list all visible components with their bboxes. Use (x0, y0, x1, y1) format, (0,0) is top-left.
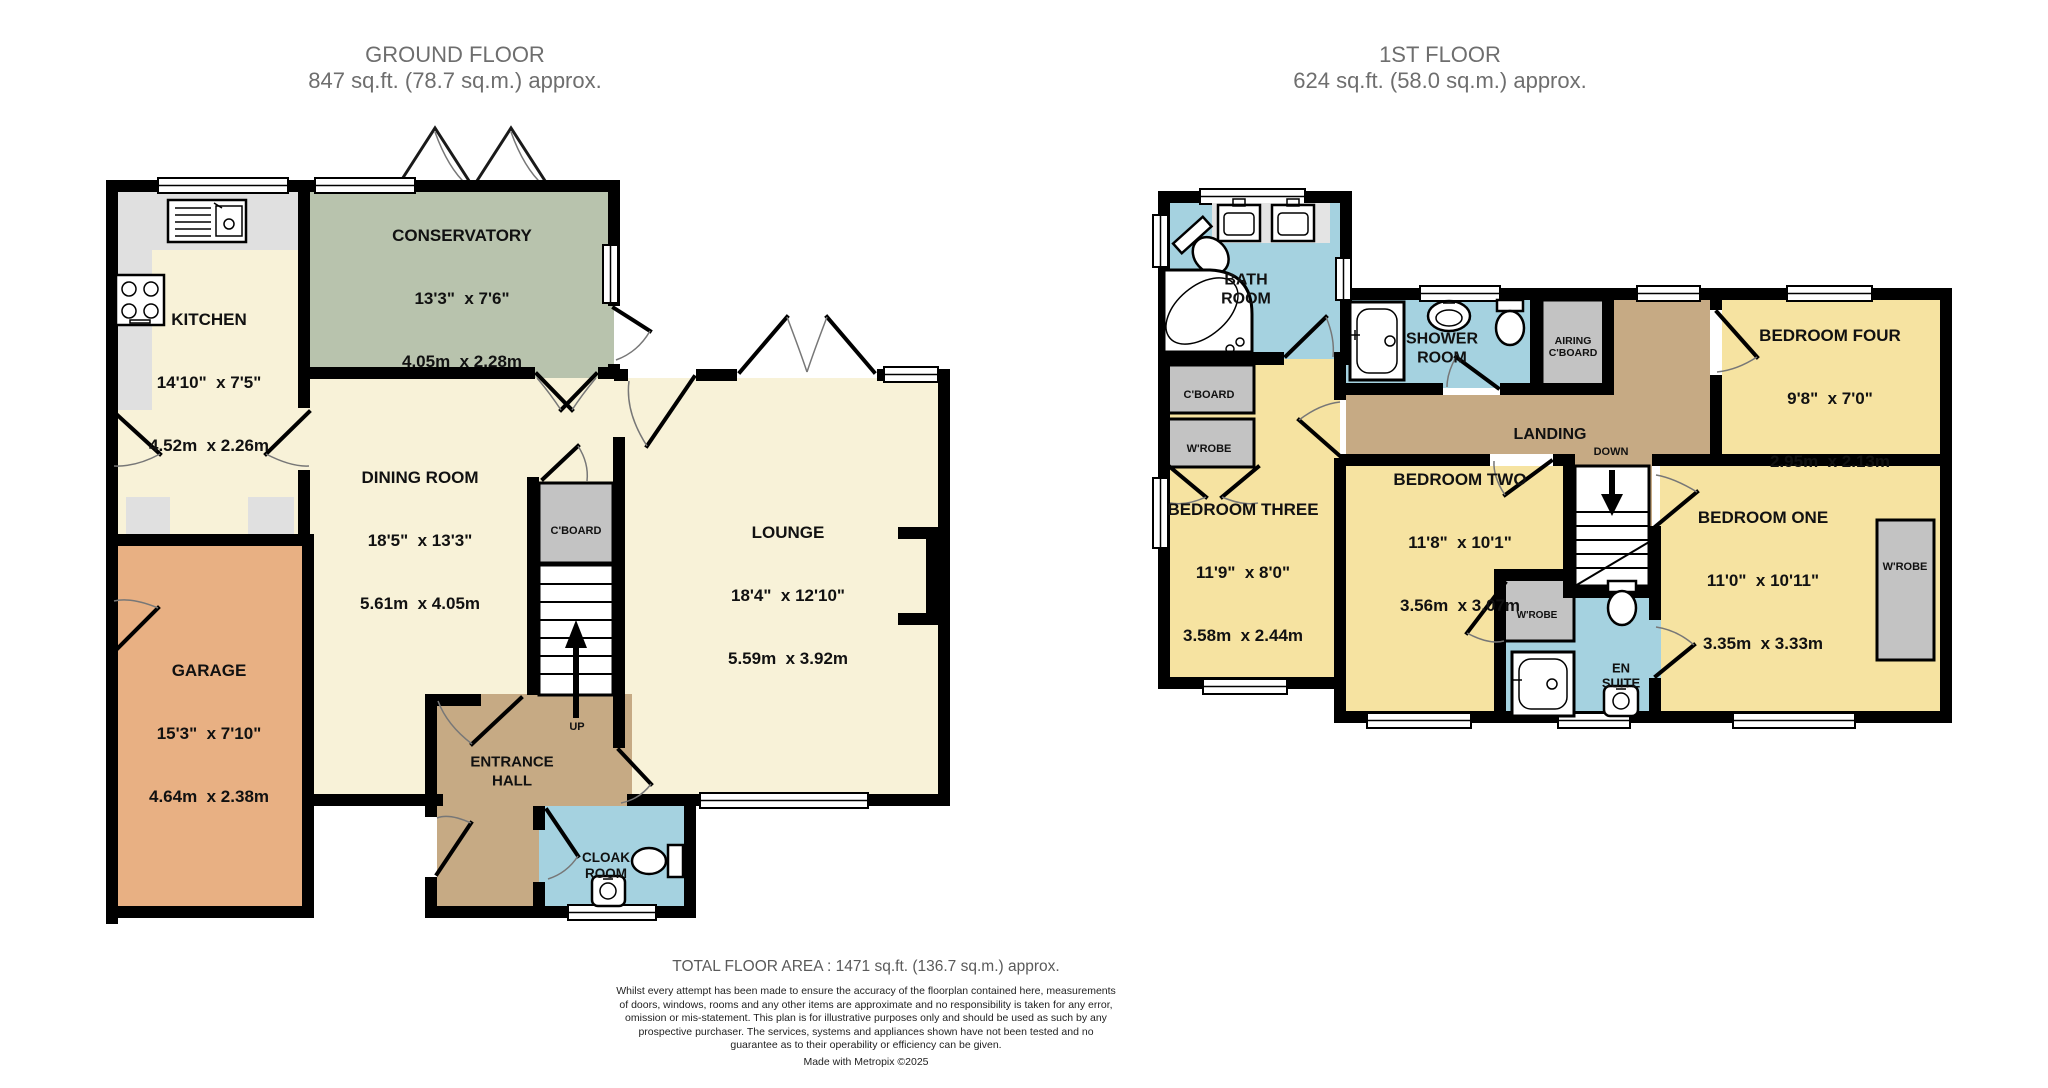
first-floor-title: 1ST FLOOR (1293, 42, 1586, 68)
label-stairs-up: UP (569, 695, 584, 747)
footer: TOTAL FLOOR AREA : 1471 sq.ft. (136.7 sq… (616, 958, 1116, 1068)
room-label-dining-room: DINING ROOM 18'5" x 13'3" 5.61m x 4.05m (360, 425, 480, 635)
room-label-cloak-room: CLOAK ROOM (582, 818, 630, 898)
ground-floor-header: GROUND FLOOR 847 sq.ft. (78.7 sq.m.) app… (308, 42, 601, 94)
shower-room-toilet-icon (1496, 300, 1524, 345)
room-label-conservatory: CONSERVATORY 13'3" x 7'6" 4.05m x 2.28m (392, 183, 532, 393)
room-label-kitchen: KITCHEN 14'10" x 7'5" 4.52m x 2.26m (149, 267, 269, 477)
kitchen-sink-icon (168, 200, 246, 242)
conservatory-gable (397, 128, 549, 187)
ensuite-shower-icon (1512, 652, 1574, 716)
room-label-en-suite: EN SUITE (1602, 631, 1640, 706)
room-label-garage: GARAGE 15'3" x 7'10" 4.64m x 2.38m (149, 618, 269, 828)
cloak-toilet-icon (632, 845, 683, 877)
disclaimer-text: Whilst every attempt has been made to en… (616, 985, 1116, 1053)
credit-text: Made with Metropix ©2025 (616, 1056, 1116, 1068)
total-floor-area: TOTAL FLOOR AREA : 1471 sq.ft. (136.7 sq… (616, 958, 1116, 976)
label-first-cupboard: C'BOARD (1184, 363, 1235, 415)
room-label-entrance-hall: ENTRANCE HALL (470, 715, 553, 810)
bathroom-sink2-icon (1272, 199, 1314, 241)
ground-floor-title: GROUND FLOOR (308, 42, 601, 68)
stairs-down (1575, 466, 1649, 586)
room-label-bedroom-one: BEDROOM ONE 11'0" x 10'11" 3.35m x 3.33m (1698, 465, 1828, 675)
ground-floor-area: 847 sq.ft. (78.7 sq.m.) approx. (308, 68, 601, 94)
first-floor-area: 624 sq.ft. (58.0 sq.m.) approx. (1293, 68, 1586, 94)
floorplan-page: { "headers": { "ground": {"title": "GROU… (0, 0, 2048, 1088)
room-label-bedroom-four: BEDROOM FOUR 9'8" x 7'0" 2.95m x 2.13m (1759, 283, 1901, 493)
room-label-bedroom-three: BEDROOM THREE 11'9" x 8'0" 3.58m x 2.44m (1167, 457, 1318, 667)
label-wardrobe-bed2: W'ROBE (1517, 586, 1558, 634)
label-airing-cupboard: AIRING C'BOARD (1549, 311, 1598, 371)
label-wardrobe-bed1: W'ROBE (1883, 535, 1928, 587)
room-label-shower-room: SHOWER ROOM (1406, 292, 1478, 387)
ensuite-toilet-icon (1608, 581, 1636, 625)
room-label-lounge: LOUNGE 18'4" x 12'10" 5.59m x 3.92m (728, 480, 848, 690)
shower-icon (1350, 302, 1404, 380)
label-ground-cupboard: C'BOARD (551, 499, 602, 551)
first-floor-header: 1ST FLOOR 624 sq.ft. (58.0 sq.m.) approx… (1293, 42, 1586, 94)
room-label-bedroom-two: BEDROOM TWO 11'8" x 10'1" 3.56m x 3.07m (1393, 427, 1526, 637)
label-stairs-down: DOWN (1594, 420, 1629, 472)
room-label-bath-room: BATH ROOM (1221, 233, 1271, 328)
